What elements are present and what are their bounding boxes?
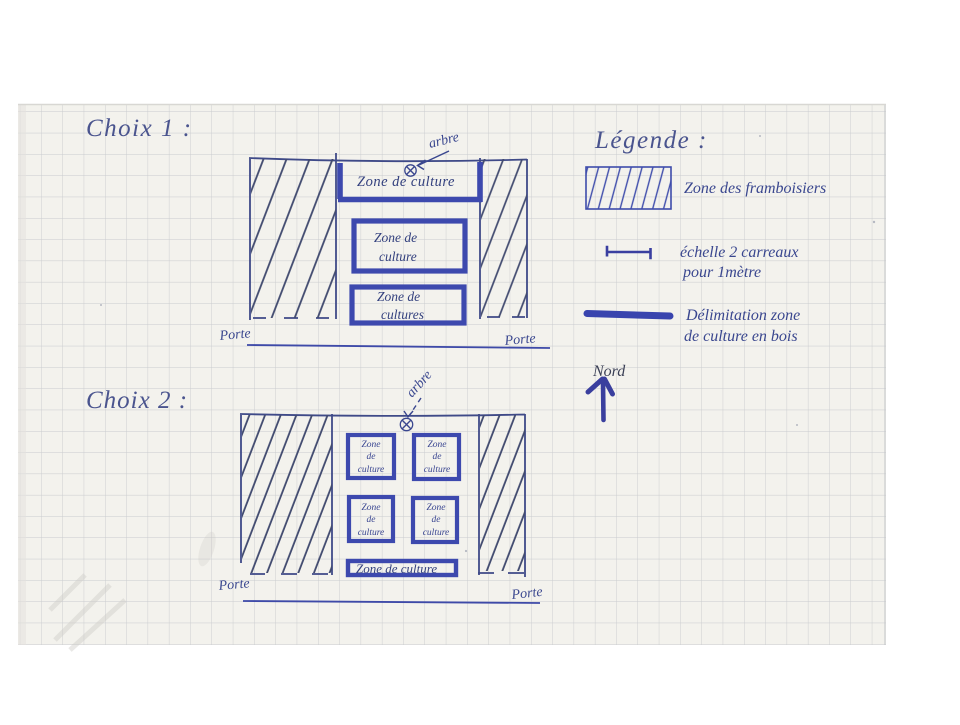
svg-text:de culture en bois: de culture en bois xyxy=(684,328,798,345)
svg-text:Zone: Zone xyxy=(428,440,447,450)
svg-text:Porte: Porte xyxy=(217,576,250,594)
svg-text:culture: culture xyxy=(358,465,385,475)
svg-text:cultures: cultures xyxy=(381,307,424,322)
svg-text:Zone de: Zone de xyxy=(377,289,420,304)
svg-text:Zone des framboisiers: Zone des framboisiers xyxy=(684,180,826,197)
svg-text:Zone de culture: Zone de culture xyxy=(357,174,455,190)
svg-text:de: de xyxy=(367,515,376,525)
svg-text:de: de xyxy=(433,452,442,462)
svg-text:culture: culture xyxy=(379,249,417,264)
svg-text:culture: culture xyxy=(423,528,450,538)
svg-text:Zone de culture: Zone de culture xyxy=(356,561,437,576)
svg-text:Porte: Porte xyxy=(218,326,251,344)
svg-text:pour 1mètre: pour 1mètre xyxy=(682,264,761,281)
svg-text:culture: culture xyxy=(358,528,385,538)
svg-text:Zone de: Zone de xyxy=(374,230,417,245)
svg-text:Nord: Nord xyxy=(592,363,626,380)
svg-text:Légende :: Légende : xyxy=(594,127,708,154)
svg-text:Délimitation zone: Délimitation zone xyxy=(685,307,800,324)
svg-text:Choix 2 :: Choix 2 : xyxy=(86,387,188,414)
svg-text:de: de xyxy=(432,515,441,525)
svg-text:Porte: Porte xyxy=(503,331,536,349)
svg-text:échelle 2 carreaux: échelle 2 carreaux xyxy=(680,244,798,261)
svg-text:de: de xyxy=(367,452,376,462)
svg-text:Choix 1 :: Choix 1 : xyxy=(86,115,193,142)
svg-text:Zone: Zone xyxy=(427,503,446,513)
svg-text:Zone: Zone xyxy=(362,440,381,450)
svg-text:culture: culture xyxy=(424,465,451,475)
svg-text:Zone: Zone xyxy=(362,503,381,513)
